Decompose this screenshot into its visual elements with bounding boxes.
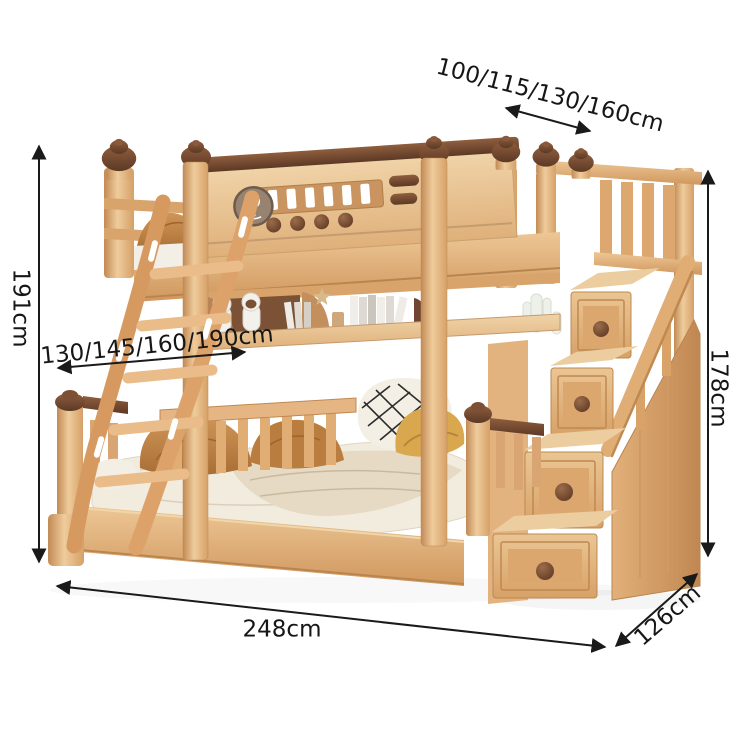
floor-shadow — [50, 577, 700, 610]
dimension-label-bottom-length: 248cm — [243, 619, 322, 642]
dimension-label-left-height: 191cm — [9, 269, 32, 348]
product-dimension-image: 100/115/130/160cm 191cm 130/145/160/190c… — [0, 0, 750, 750]
dimension-label-right-height: 178cm — [707, 349, 730, 428]
